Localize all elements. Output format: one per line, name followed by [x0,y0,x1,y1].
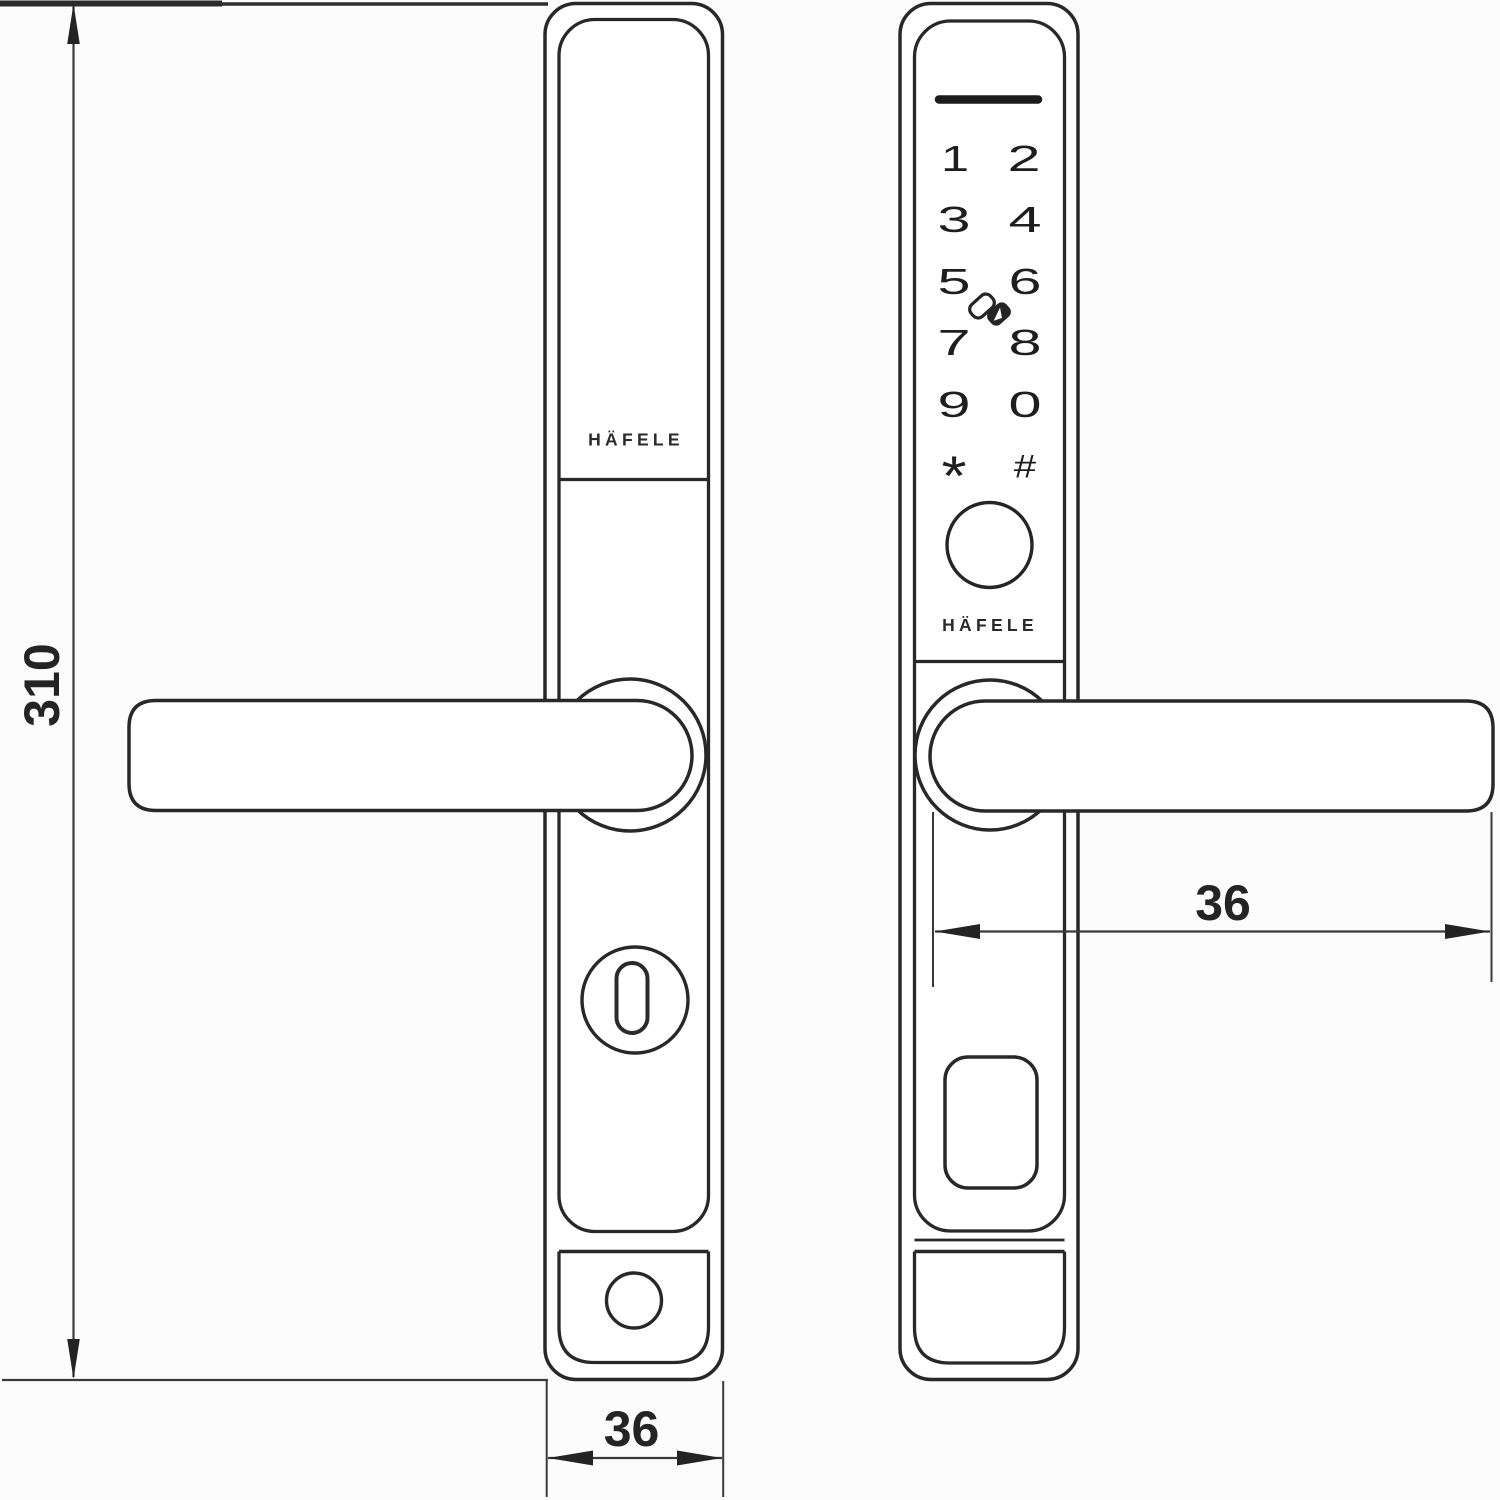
svg-text:1: 1 [941,139,969,179]
svg-text:#: # [1014,448,1036,484]
svg-text:9: 9 [937,385,970,425]
svg-text:*: * [941,444,966,507]
svg-text:36: 36 [1195,875,1251,931]
svg-text:3: 3 [937,200,970,240]
svg-text:0: 0 [1008,385,1041,425]
svg-text:8: 8 [1008,323,1041,363]
svg-text:36: 36 [604,1401,660,1457]
svg-text:310: 310 [14,643,70,726]
svg-text:HÄFELE: HÄFELE [942,615,1038,635]
svg-text:5: 5 [937,262,970,302]
svg-text:7: 7 [937,323,970,363]
svg-text:HÄFELE: HÄFELE [588,430,684,450]
svg-text:6: 6 [1008,262,1041,302]
svg-text:2: 2 [1007,139,1040,179]
svg-text:4: 4 [1008,200,1041,240]
